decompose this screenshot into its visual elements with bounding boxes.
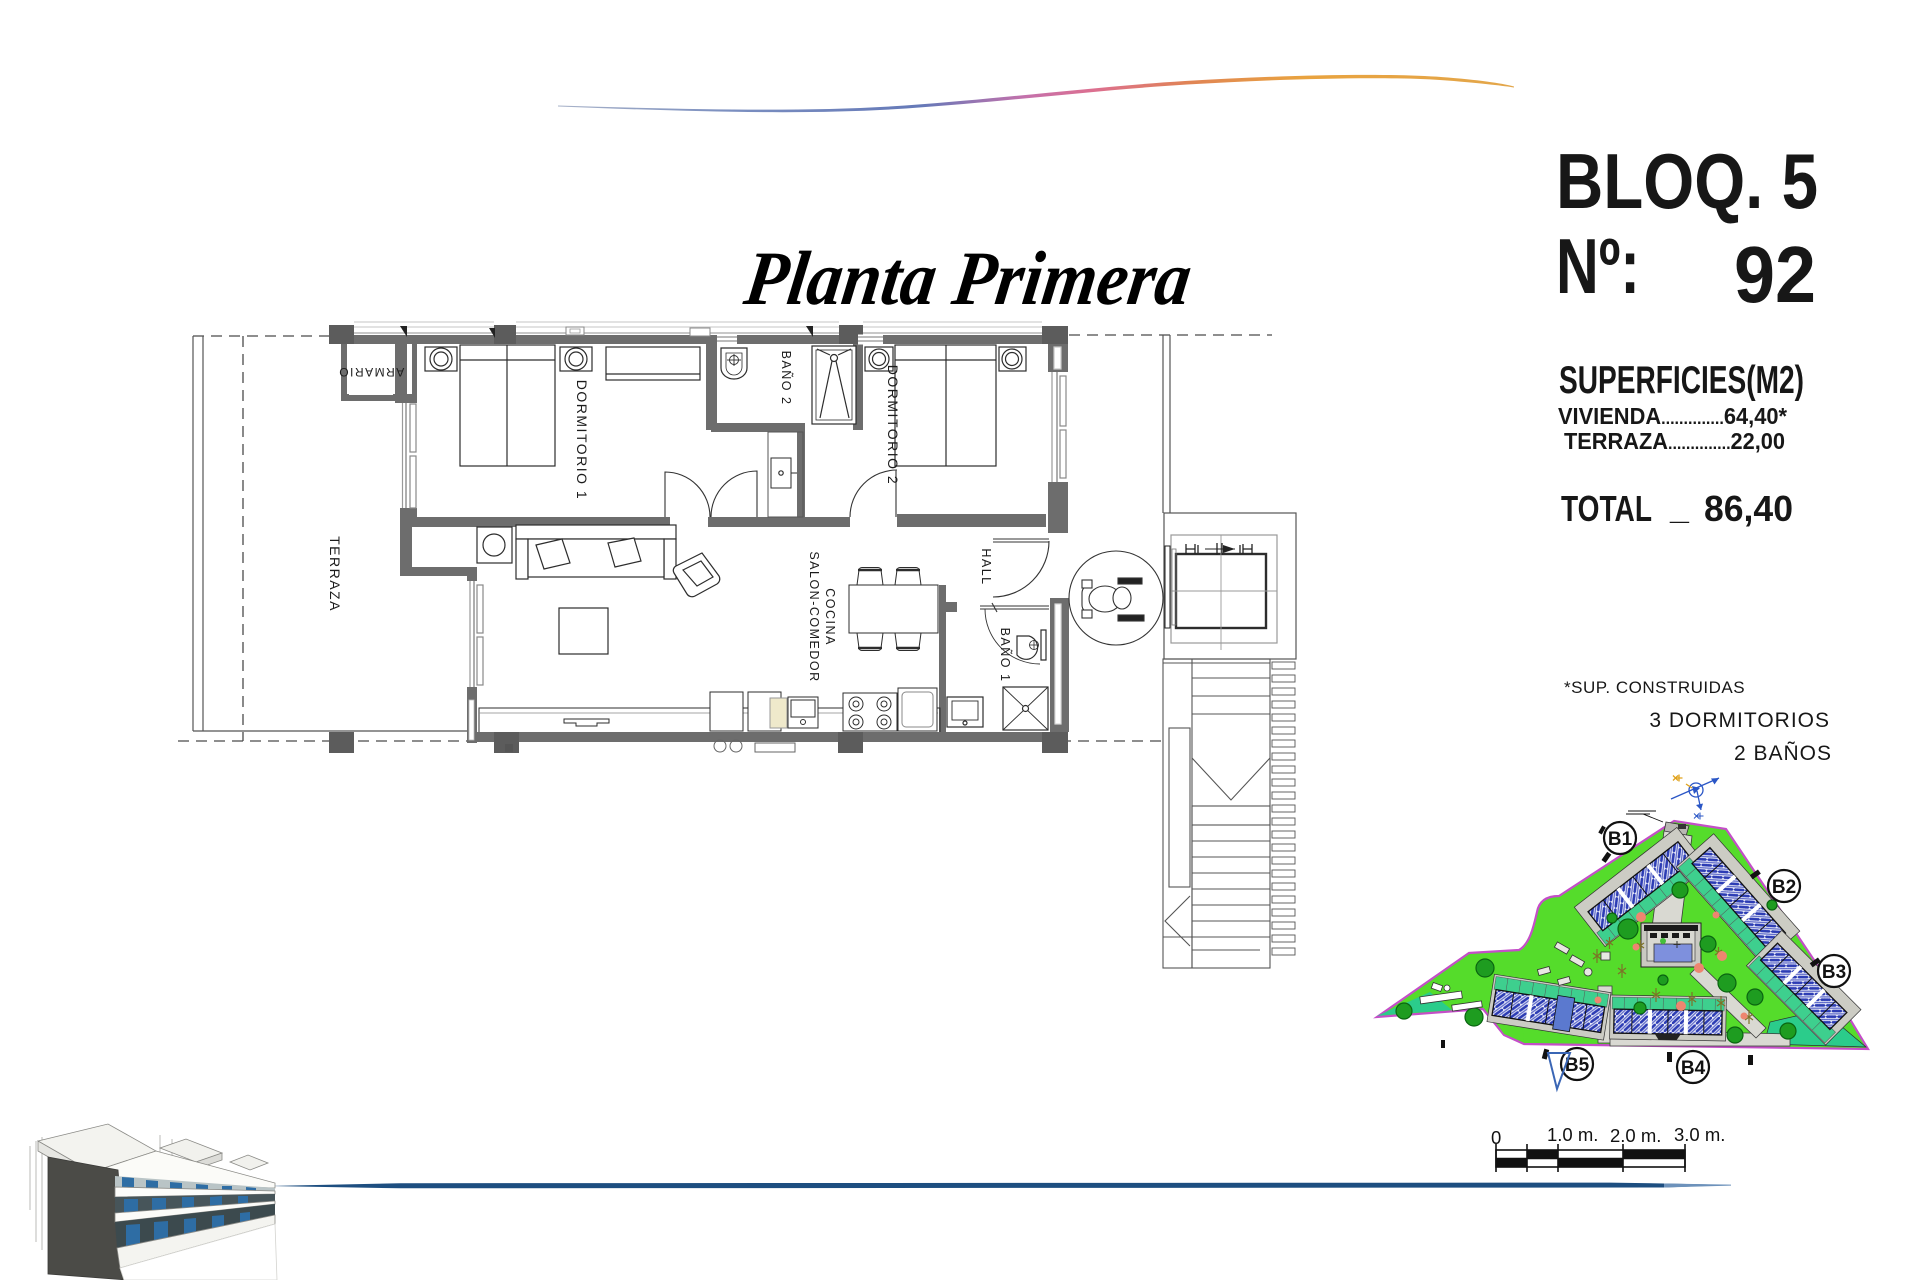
svg-text:3 DORMITORIOS: 3 DORMITORIOS [1649,709,1830,732]
svg-text:92: 92 [1734,230,1816,319]
svg-text:1.0 m.: 1.0 m. [1547,1124,1598,1145]
svg-text:COCINA: COCINA [823,588,837,646]
svg-text:BLOQ. 5: BLOQ. 5 [1556,137,1818,225]
svg-text:HALL: HALL [979,548,993,585]
svg-text:SUPERFICIES(M2): SUPERFICIES(M2) [1559,359,1804,402]
svg-text:SALON-COMEDOR: SALON-COMEDOR [807,551,821,682]
svg-text:2 BAÑOS: 2 BAÑOS [1734,741,1832,765]
svg-text:B2: B2 [1772,877,1796,898]
svg-text:86,40: 86,40 [1704,488,1793,529]
svg-text:TERRAZA: TERRAZA [327,536,343,612]
svg-text:*SUP. CONSTRUIDAS: *SUP. CONSTRUIDAS [1564,678,1745,697]
svg-text:DORMITORIO 2: DORMITORIO 2 [885,365,901,485]
svg-text:B1: B1 [1608,829,1633,850]
svg-text:BAÑO 1: BAÑO 1 [998,628,1012,683]
svg-text:TOTAL: TOTAL [1561,488,1652,529]
svg-text:_: _ [1669,489,1690,527]
svg-text:B4: B4 [1681,1058,1706,1079]
svg-text:BAÑO 2: BAÑO 2 [779,351,793,406]
svg-text:DORMITORIO 1: DORMITORIO 1 [574,380,590,500]
svg-text:ARMARIO: ARMARIO [338,365,405,379]
svg-text:Nº:: Nº: [1556,222,1640,310]
svg-text:2.0 m.: 2.0 m. [1610,1125,1661,1146]
svg-text:B3: B3 [1822,962,1846,983]
svg-text:3.0 m.: 3.0 m. [1674,1124,1725,1145]
svg-text:Planta Primera: Planta Primera [739,235,1197,321]
